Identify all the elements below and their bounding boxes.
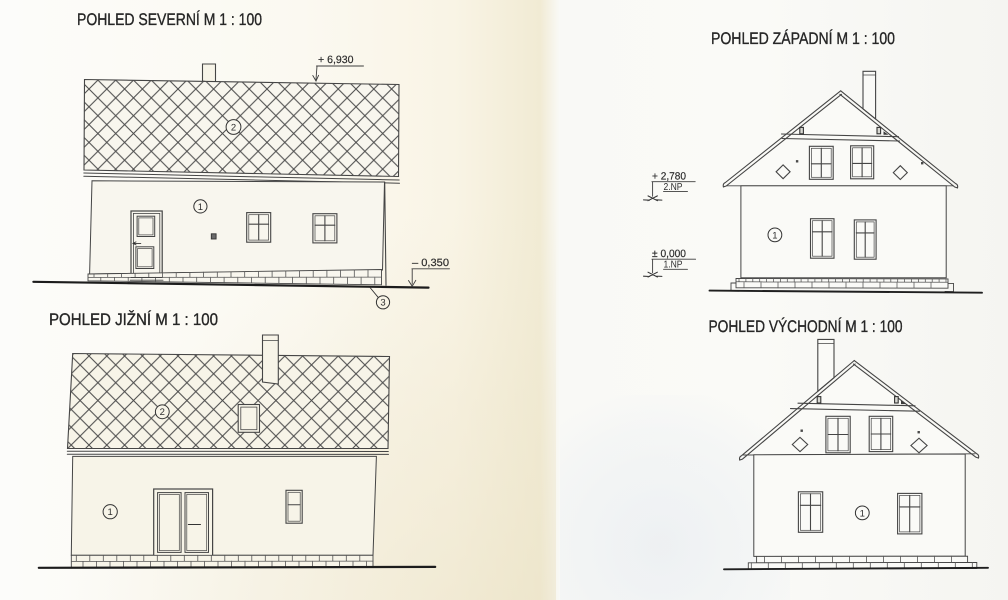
svg-text:1: 1 [198, 202, 203, 213]
svg-text:1: 1 [860, 508, 865, 519]
svg-text:POHLED ZÁPADNÍ M 1 : 100: POHLED ZÁPADNÍ M 1 : 100 [711, 29, 895, 48]
svg-text:POHLED VÝCHODNÍ M 1 : 100: POHLED VÝCHODNÍ M 1 : 100 [709, 317, 903, 336]
svg-text:+ 6,930: + 6,930 [318, 54, 354, 66]
svg-text:2: 2 [160, 407, 165, 418]
svg-text:1.NP: 1.NP [664, 260, 683, 271]
svg-text:1: 1 [108, 507, 113, 518]
svg-text:– 0,350: – 0,350 [412, 257, 449, 269]
svg-text:POHLED SEVERNÍ M 1 : 100: POHLED SEVERNÍ M 1 : 100 [77, 10, 262, 29]
svg-text:3: 3 [380, 298, 385, 309]
svg-text:2: 2 [231, 122, 236, 133]
svg-text:± 0,000: ± 0,000 [652, 248, 686, 260]
svg-text:1: 1 [772, 230, 777, 241]
svg-text:POHLED JIŽNÍ M 1 : 100: POHLED JIŽNÍ M 1 : 100 [49, 310, 218, 329]
svg-text:2.NP: 2.NP [664, 182, 683, 193]
svg-text:+ 2,780: + 2,780 [652, 171, 686, 183]
